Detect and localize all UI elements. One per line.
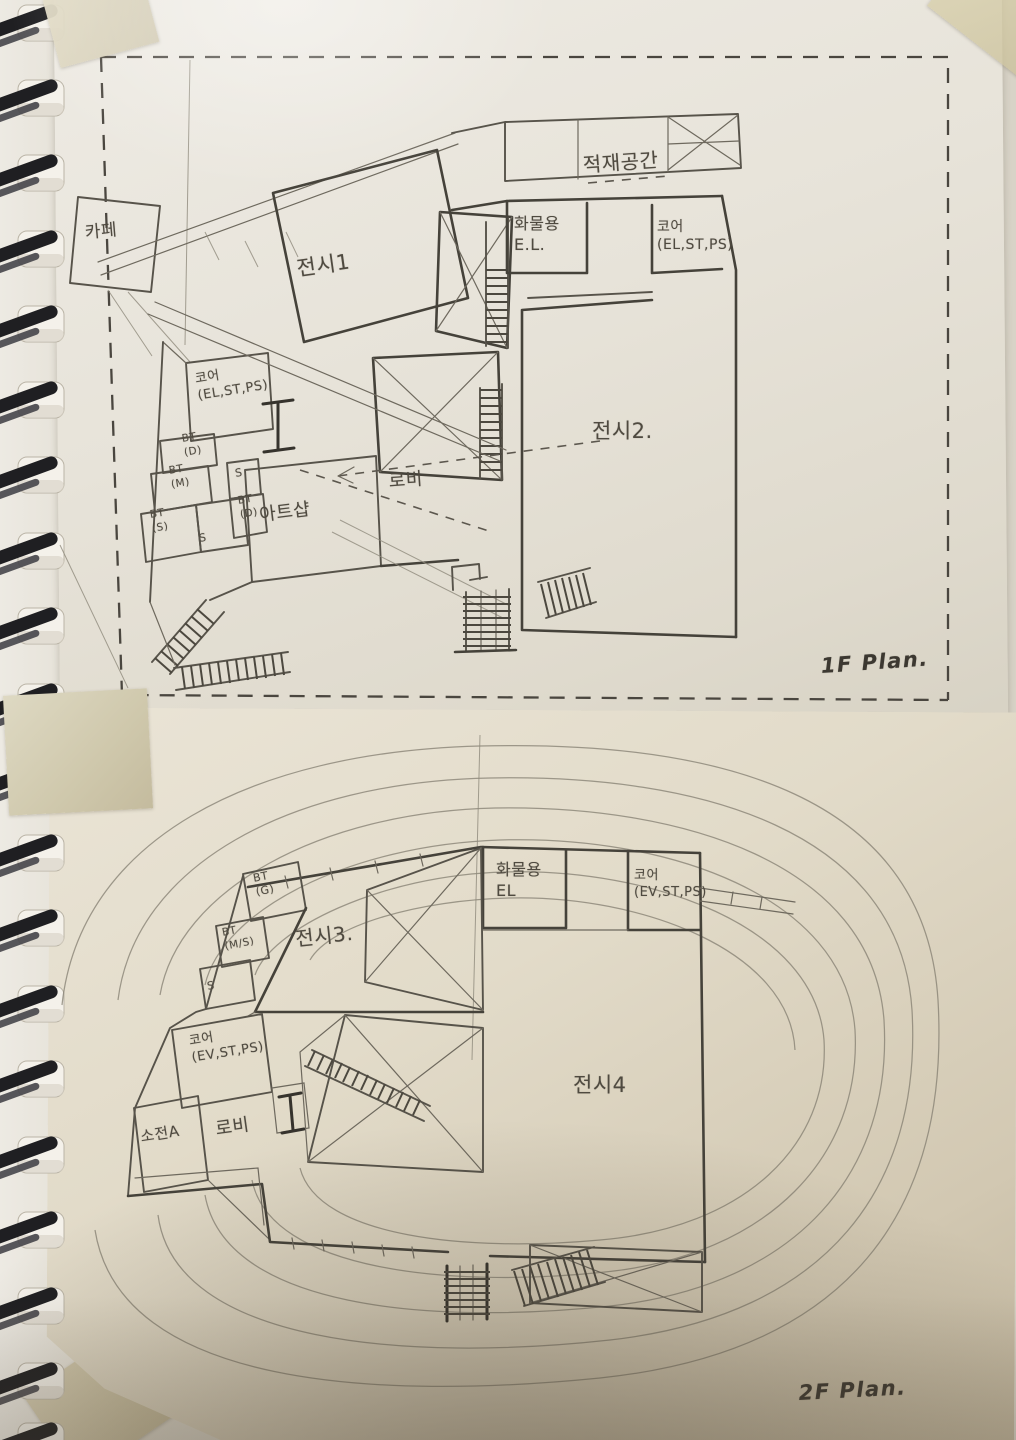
room-label-bt-d-lower: BT (D) xyxy=(237,492,259,522)
room-label-lobby-2f: 로비 xyxy=(214,1113,251,1141)
room-label-core-right-2f: 코어 (EV,ST,PS) xyxy=(634,868,707,902)
room-label-s-lower: S xyxy=(198,531,208,546)
room-label-exhibition4: 전시4 xyxy=(573,1072,627,1099)
room-label-core-left-2f: 코어 (EV,ST,PS) xyxy=(188,1023,265,1068)
room-label-bt-m: BT (M) xyxy=(168,462,191,492)
room-label-bt-s: BT (S) xyxy=(149,506,169,536)
plan-title-2f: 2F Plan. xyxy=(798,1374,907,1407)
room-label-s-upper: S xyxy=(234,466,244,481)
plan-title-1f: 1F Plan. xyxy=(820,645,930,680)
room-label-bt-ms: BT (M/S) xyxy=(221,921,256,953)
room-label-sojeon-a: 소전A xyxy=(139,1122,181,1147)
room-label-freight-elevator-1f: 화물용 E.L. xyxy=(514,214,560,256)
room-label-exhibition1: 전시1 xyxy=(295,249,352,283)
room-label-art-shop: 아트샵 xyxy=(258,498,312,527)
room-label-s-2f: S xyxy=(206,979,216,994)
room-label-loading-space: 적재공간 xyxy=(582,147,659,178)
plan-labels: 카페 전시1 적재공간 화물용 E.L. 코어 (EL,ST,PS) 전시2. … xyxy=(0,0,1016,1440)
notebook-photo: 카페 전시1 적재공간 화물용 E.L. 코어 (EL,ST,PS) 전시2. … xyxy=(0,0,1016,1440)
room-label-bt-g: BT (G) xyxy=(252,868,276,900)
room-label-bt-d-upper: BT (D) xyxy=(181,430,203,460)
room-label-freight-elevator-2f: 화물용 EL xyxy=(496,860,542,902)
room-label-core-right-1f: 코어 (EL,ST,PS) xyxy=(657,218,733,254)
masking-tape-middle-left xyxy=(3,688,153,815)
room-label-core-left-1f: 코어 (EL,ST,PS) xyxy=(194,361,270,405)
room-label-cafe: 카페 xyxy=(84,219,118,244)
room-label-exhibition2: 전시2. xyxy=(592,418,653,445)
room-label-lobby-1f: 로비 xyxy=(388,468,424,494)
room-label-exhibition3: 전시3. xyxy=(294,920,354,952)
